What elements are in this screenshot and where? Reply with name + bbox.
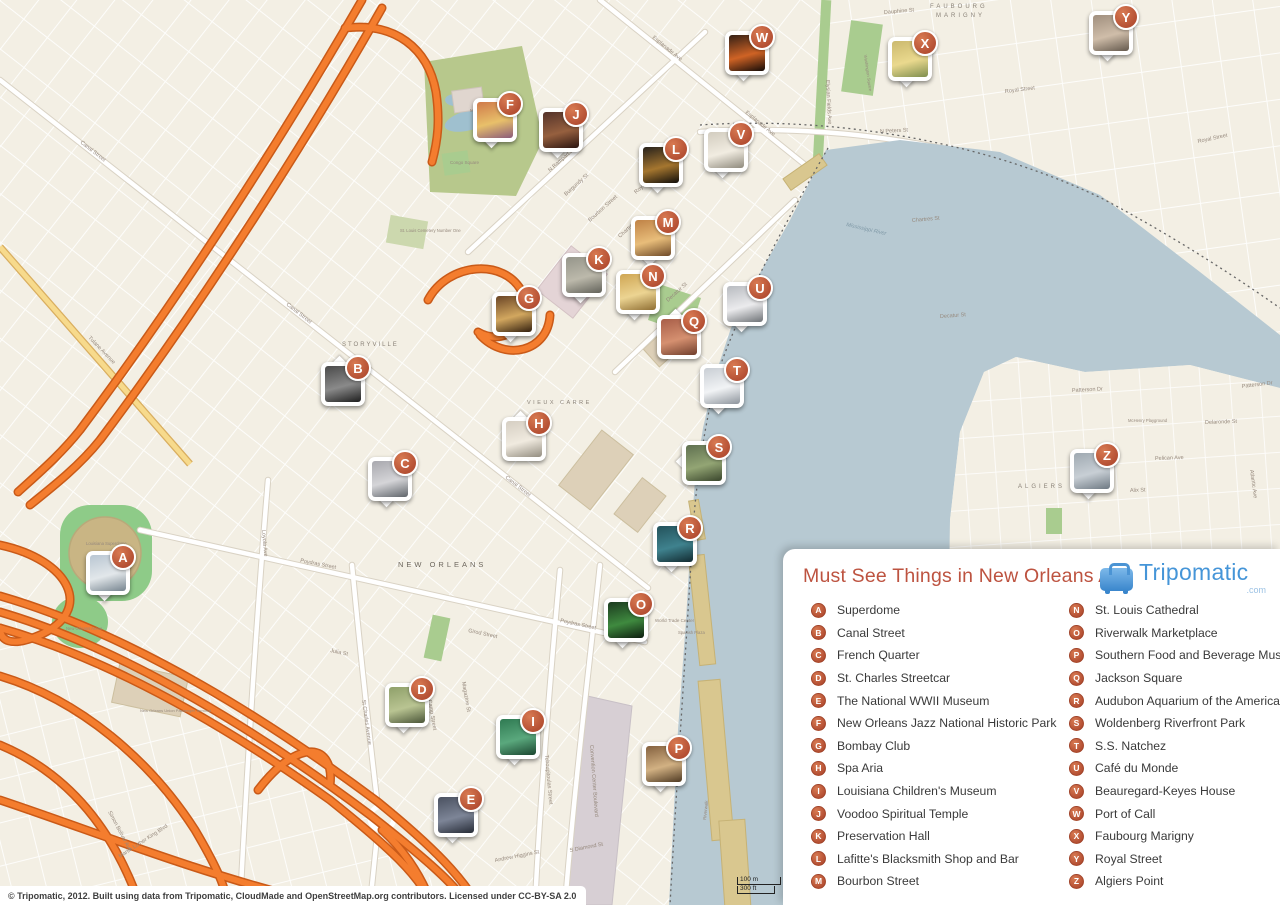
marker-letter-badge: R — [677, 515, 703, 541]
legend-item-label: Bourbon Street — [837, 874, 919, 888]
map-marker-u[interactable]: U — [723, 282, 767, 326]
legend-item-y: YRoyal Street — [1069, 848, 1280, 871]
marker-letter-badge: S — [706, 434, 732, 460]
legend-item-label: Port of Call — [1095, 807, 1155, 821]
marker-letter-badge: Q — [681, 308, 707, 334]
map-marker-x[interactable]: X — [888, 37, 932, 81]
map-marker-q[interactable]: Q — [657, 315, 701, 359]
legend-item-r: RAudubon Aquarium of the Americas — [1069, 689, 1280, 712]
legend-item-k: KPreservation Hall — [811, 825, 1056, 848]
scale-metric: 100 m — [737, 877, 781, 885]
legend-letter-badge: M — [811, 874, 826, 889]
map-label: MARIGNY — [936, 13, 985, 19]
map-marker-e[interactable]: E — [434, 793, 478, 837]
map-label: Congo Square — [450, 160, 480, 165]
map-marker-h[interactable]: H — [502, 417, 546, 461]
legend-item-f: FNew Orleans Jazz National Historic Park — [811, 712, 1056, 735]
marker-letter-badge: I — [520, 708, 546, 734]
legend-item-label: Riverwalk Marketplace — [1095, 626, 1218, 640]
legend-item-label: St. Charles Streetcar — [837, 671, 950, 685]
legend-letter-badge: B — [811, 625, 826, 640]
legend-item-n: NSt. Louis Cathedral — [1069, 599, 1280, 622]
map-label: Pelican Ave — [1155, 455, 1184, 462]
legend-item-q: QJackson Square — [1069, 667, 1280, 690]
legend-letter-badge: P — [1069, 648, 1084, 663]
map-marker-n[interactable]: N — [616, 270, 660, 314]
map-marker-d[interactable]: D — [385, 683, 429, 727]
legend-letter-badge: L — [811, 851, 826, 866]
legend-letter-badge: S — [1069, 716, 1084, 731]
legend-item-m: MBourbon Street — [811, 870, 1056, 893]
legend-item-z: ZAlgiers Point — [1069, 870, 1280, 893]
legend-item-label: Jackson Square — [1095, 671, 1182, 685]
legend-item-x: XFaubourg Marigny — [1069, 825, 1280, 848]
scale-bar: 100 m 300 ft — [737, 877, 781, 894]
legend-letter-badge: N — [1069, 603, 1084, 618]
map-marker-b[interactable]: B — [321, 362, 365, 406]
marker-letter-badge: G — [516, 285, 542, 311]
legend-item-label: Bombay Club — [837, 739, 910, 753]
legend-item-g: GBombay Club — [811, 735, 1056, 758]
legend-item-label: Louisiana Children's Museum — [837, 784, 997, 798]
map-marker-p[interactable]: P — [642, 742, 686, 786]
map-marker-j[interactable]: J — [539, 108, 583, 152]
legend-item-label: Superdome — [837, 603, 900, 617]
tripomatic-logo[interactable]: Tripomatic .com — [1100, 559, 1266, 595]
legend-item-label: Café du Monde — [1095, 761, 1178, 775]
map-label: New Orleans Arena — [66, 626, 103, 631]
map-label: Spanish Plaza — [678, 630, 705, 635]
marker-letter-badge: U — [747, 275, 773, 301]
legend-item-c: CFrench Quarter — [811, 644, 1056, 667]
marker-letter-badge: J — [563, 101, 589, 127]
legend-letter-badge: J — [811, 806, 826, 821]
legend-letter-badge: K — [811, 829, 826, 844]
legend-letter-badge: O — [1069, 625, 1084, 640]
marker-letter-badge: L — [663, 136, 689, 162]
legend-letter-badge: F — [811, 716, 826, 731]
marker-letter-badge: Z — [1094, 442, 1120, 468]
map-marker-m[interactable]: M — [631, 216, 675, 260]
legend-item-d: DSt. Charles Streetcar — [811, 667, 1056, 690]
map-marker-w[interactable]: W — [725, 31, 769, 75]
legend-item-label: Southern Food and Beverage Museum — [1095, 648, 1280, 662]
map-label: Delaronde St — [1205, 419, 1238, 426]
legend-letter-badge: E — [811, 693, 826, 708]
marker-letter-badge: C — [392, 450, 418, 476]
marker-letter-badge: V — [728, 121, 754, 147]
marker-letter-badge: W — [749, 24, 775, 50]
marker-letter-badge: P — [666, 735, 692, 761]
legend-letter-badge: R — [1069, 693, 1084, 708]
marker-letter-badge: N — [640, 263, 666, 289]
logo-name: Tripomatic — [1139, 559, 1249, 586]
map-label: New Orleans Union Passenger Terminal — [140, 708, 211, 713]
legend-letter-badge: D — [811, 671, 826, 686]
legend-letter-badge: T — [1069, 738, 1084, 753]
legend-item-u: UCafé du Monde — [1069, 757, 1280, 780]
legend-item-label: Lafitte's Blacksmith Shop and Bar — [837, 852, 1019, 866]
map-label: World Trade Center — [655, 618, 695, 623]
legend-item-w: WPort of Call — [1069, 802, 1280, 825]
map-label: Alix St — [1130, 487, 1146, 494]
legend-item-label: Voodoo Spiritual Temple — [837, 807, 968, 821]
legend-column-1: NSt. Louis CathedralORiverwalk Marketpla… — [1069, 599, 1280, 893]
marker-letter-badge: F — [497, 91, 523, 117]
legend-item-label: Spa Aria — [837, 761, 883, 775]
legend-letter-badge: V — [1069, 784, 1084, 799]
marker-letter-badge: O — [628, 591, 654, 617]
legend-letter-badge: I — [811, 784, 826, 799]
marker-letter-badge: B — [345, 355, 371, 381]
map-label: McHenry Playground — [1128, 418, 1168, 423]
legend-letter-badge: Y — [1069, 851, 1084, 866]
marker-letter-badge: Y — [1113, 4, 1139, 30]
map-label: FAUBOURG — [930, 4, 988, 10]
legend-letter-badge: H — [811, 761, 826, 776]
legend-item-label: S.S. Natchez — [1095, 739, 1166, 753]
marker-letter-badge: A — [110, 544, 136, 570]
marker-letter-badge: X — [912, 30, 938, 56]
legend-item-label: French Quarter — [837, 648, 920, 662]
legend-panel: Must See Things in New Orleans A-Z Tripo… — [783, 549, 1280, 905]
legend-item-s: SWoldenberg Riverfront Park — [1069, 712, 1280, 735]
map-canvas[interactable]: NEW ORLEANSSTORYVILLEVIEUX CARREFAUBOURG… — [0, 0, 1280, 905]
legend-item-label: Preservation Hall — [837, 829, 930, 843]
map-marker-g[interactable]: G — [492, 292, 536, 336]
map-marker-k[interactable]: K — [562, 253, 606, 297]
map-label: VIEUX CARRE — [527, 400, 592, 406]
legend-letter-badge: U — [1069, 761, 1084, 776]
logo-tld: .com — [1246, 585, 1266, 595]
legend-item-label: Beauregard-Keyes House — [1095, 784, 1235, 798]
map-label: ALGIERS — [1018, 484, 1065, 490]
legend-item-label: St. Louis Cathedral — [1095, 603, 1199, 617]
map-marker-f[interactable]: F — [473, 98, 517, 142]
marker-letter-badge: T — [724, 357, 750, 383]
legend-letter-badge: W — [1069, 806, 1084, 821]
legend-letter-badge: Q — [1069, 671, 1084, 686]
legend-letter-badge: Z — [1069, 874, 1084, 889]
map-marker-v[interactable]: V — [704, 128, 748, 172]
legend-letter-badge: X — [1069, 829, 1084, 844]
marker-letter-badge: M — [655, 209, 681, 235]
legend-item-label: New Orleans Jazz National Historic Park — [837, 716, 1056, 730]
map-marker-l[interactable]: L — [639, 143, 683, 187]
legend-item-label: Algiers Point — [1095, 874, 1163, 888]
map-marker-a[interactable]: A — [86, 551, 130, 595]
legend-item-e: EThe National WWII Museum — [811, 689, 1056, 712]
map-marker-c[interactable]: C — [368, 457, 412, 501]
legend-item-a: ASuperdome — [811, 599, 1056, 622]
legend-item-label: Faubourg Marigny — [1095, 829, 1194, 843]
attribution-bar: © Tripomatic, 2012. Built using data fro… — [0, 886, 586, 905]
map-label: STORYVILLE — [342, 342, 399, 348]
map-marker-i[interactable]: I — [496, 715, 540, 759]
map-marker-t[interactable]: T — [700, 364, 744, 408]
map-marker-s[interactable]: S — [682, 441, 726, 485]
legend-letter-badge: G — [811, 738, 826, 753]
legend-letter-badge: C — [811, 648, 826, 663]
map-marker-z[interactable]: Z — [1070, 449, 1114, 493]
map-label: NEW ORLEANS — [398, 560, 486, 569]
legend-item-j: JVoodoo Spiritual Temple — [811, 802, 1056, 825]
legend-item-v: VBeauregard-Keyes House — [1069, 780, 1280, 803]
legend-item-i: ILouisiana Children's Museum — [811, 780, 1056, 803]
suitcase-icon — [1100, 568, 1133, 591]
map-marker-r[interactable]: R — [653, 522, 697, 566]
map-label: St. Louis Cemetery Number One — [400, 228, 461, 233]
map-marker-y[interactable]: Y — [1089, 11, 1133, 55]
map-marker-o[interactable]: O — [604, 598, 648, 642]
marker-letter-badge: E — [458, 786, 484, 812]
legend-item-b: BCanal Street — [811, 622, 1056, 645]
marker-letter-badge: D — [409, 676, 435, 702]
legend-item-t: TS.S. Natchez — [1069, 735, 1280, 758]
legend-item-label: Royal Street — [1095, 852, 1162, 866]
legend-column-0: ASuperdomeBCanal StreetCFrench QuarterDS… — [811, 599, 1056, 893]
legend-item-o: ORiverwalk Marketplace — [1069, 622, 1280, 645]
legend-item-p: PSouthern Food and Beverage Museum — [1069, 644, 1280, 667]
legend-item-label: Woldenberg Riverfront Park — [1095, 716, 1245, 730]
legend-item-label: The National WWII Museum — [837, 694, 989, 708]
marker-letter-badge: H — [526, 410, 552, 436]
marker-letter-badge: K — [586, 246, 612, 272]
legend-item-label: Canal Street — [837, 626, 905, 640]
legend-item-l: LLafitte's Blacksmith Shop and Bar — [811, 848, 1056, 871]
legend-item-label: Audubon Aquarium of the Americas — [1095, 694, 1280, 708]
legend-item-h: HSpa Aria — [811, 757, 1056, 780]
attribution-text: © Tripomatic, 2012. Built using data fro… — [8, 891, 576, 901]
scale-imperial: 300 ft — [737, 886, 775, 894]
legend-letter-badge: A — [811, 603, 826, 618]
